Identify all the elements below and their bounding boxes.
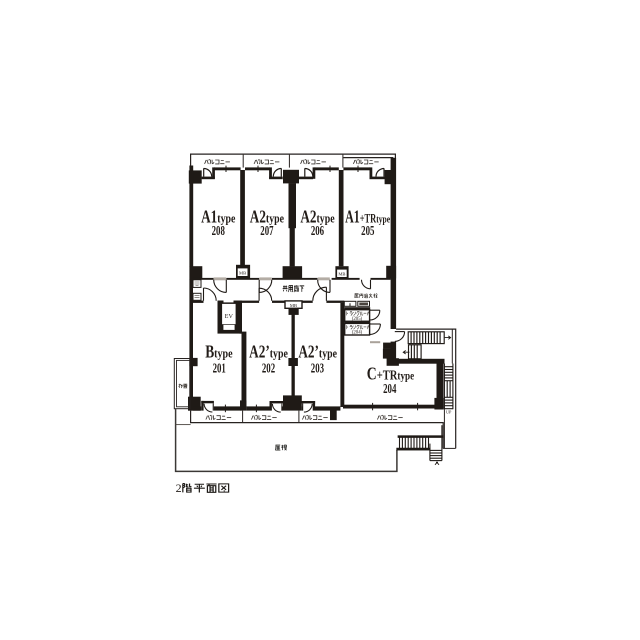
svg-text:208: 208 (212, 224, 226, 238)
svg-text:202: 202 (262, 362, 276, 376)
svg-text:205: 205 (361, 224, 375, 238)
svg-text:MB: MB (239, 271, 246, 276)
svg-text:204: 204 (383, 382, 397, 396)
svg-text:(204): (204) (352, 331, 363, 336)
svg-text:201: 201 (213, 362, 227, 376)
svg-text:203: 203 (311, 362, 325, 376)
svg-text:206: 206 (311, 224, 325, 238)
svg-text:MB: MB (290, 303, 297, 308)
svg-text:(205): (205) (352, 317, 363, 322)
svg-text:EV: EV (225, 313, 234, 320)
svg-text:UP: UP (446, 410, 452, 415)
svg-text:2: 2 (176, 481, 182, 495)
svg-text:MB: MB (384, 344, 391, 349)
svg-text:207: 207 (260, 224, 274, 238)
svg-text:Btype: Btype (205, 343, 232, 362)
svg-text:MB: MB (338, 272, 345, 277)
